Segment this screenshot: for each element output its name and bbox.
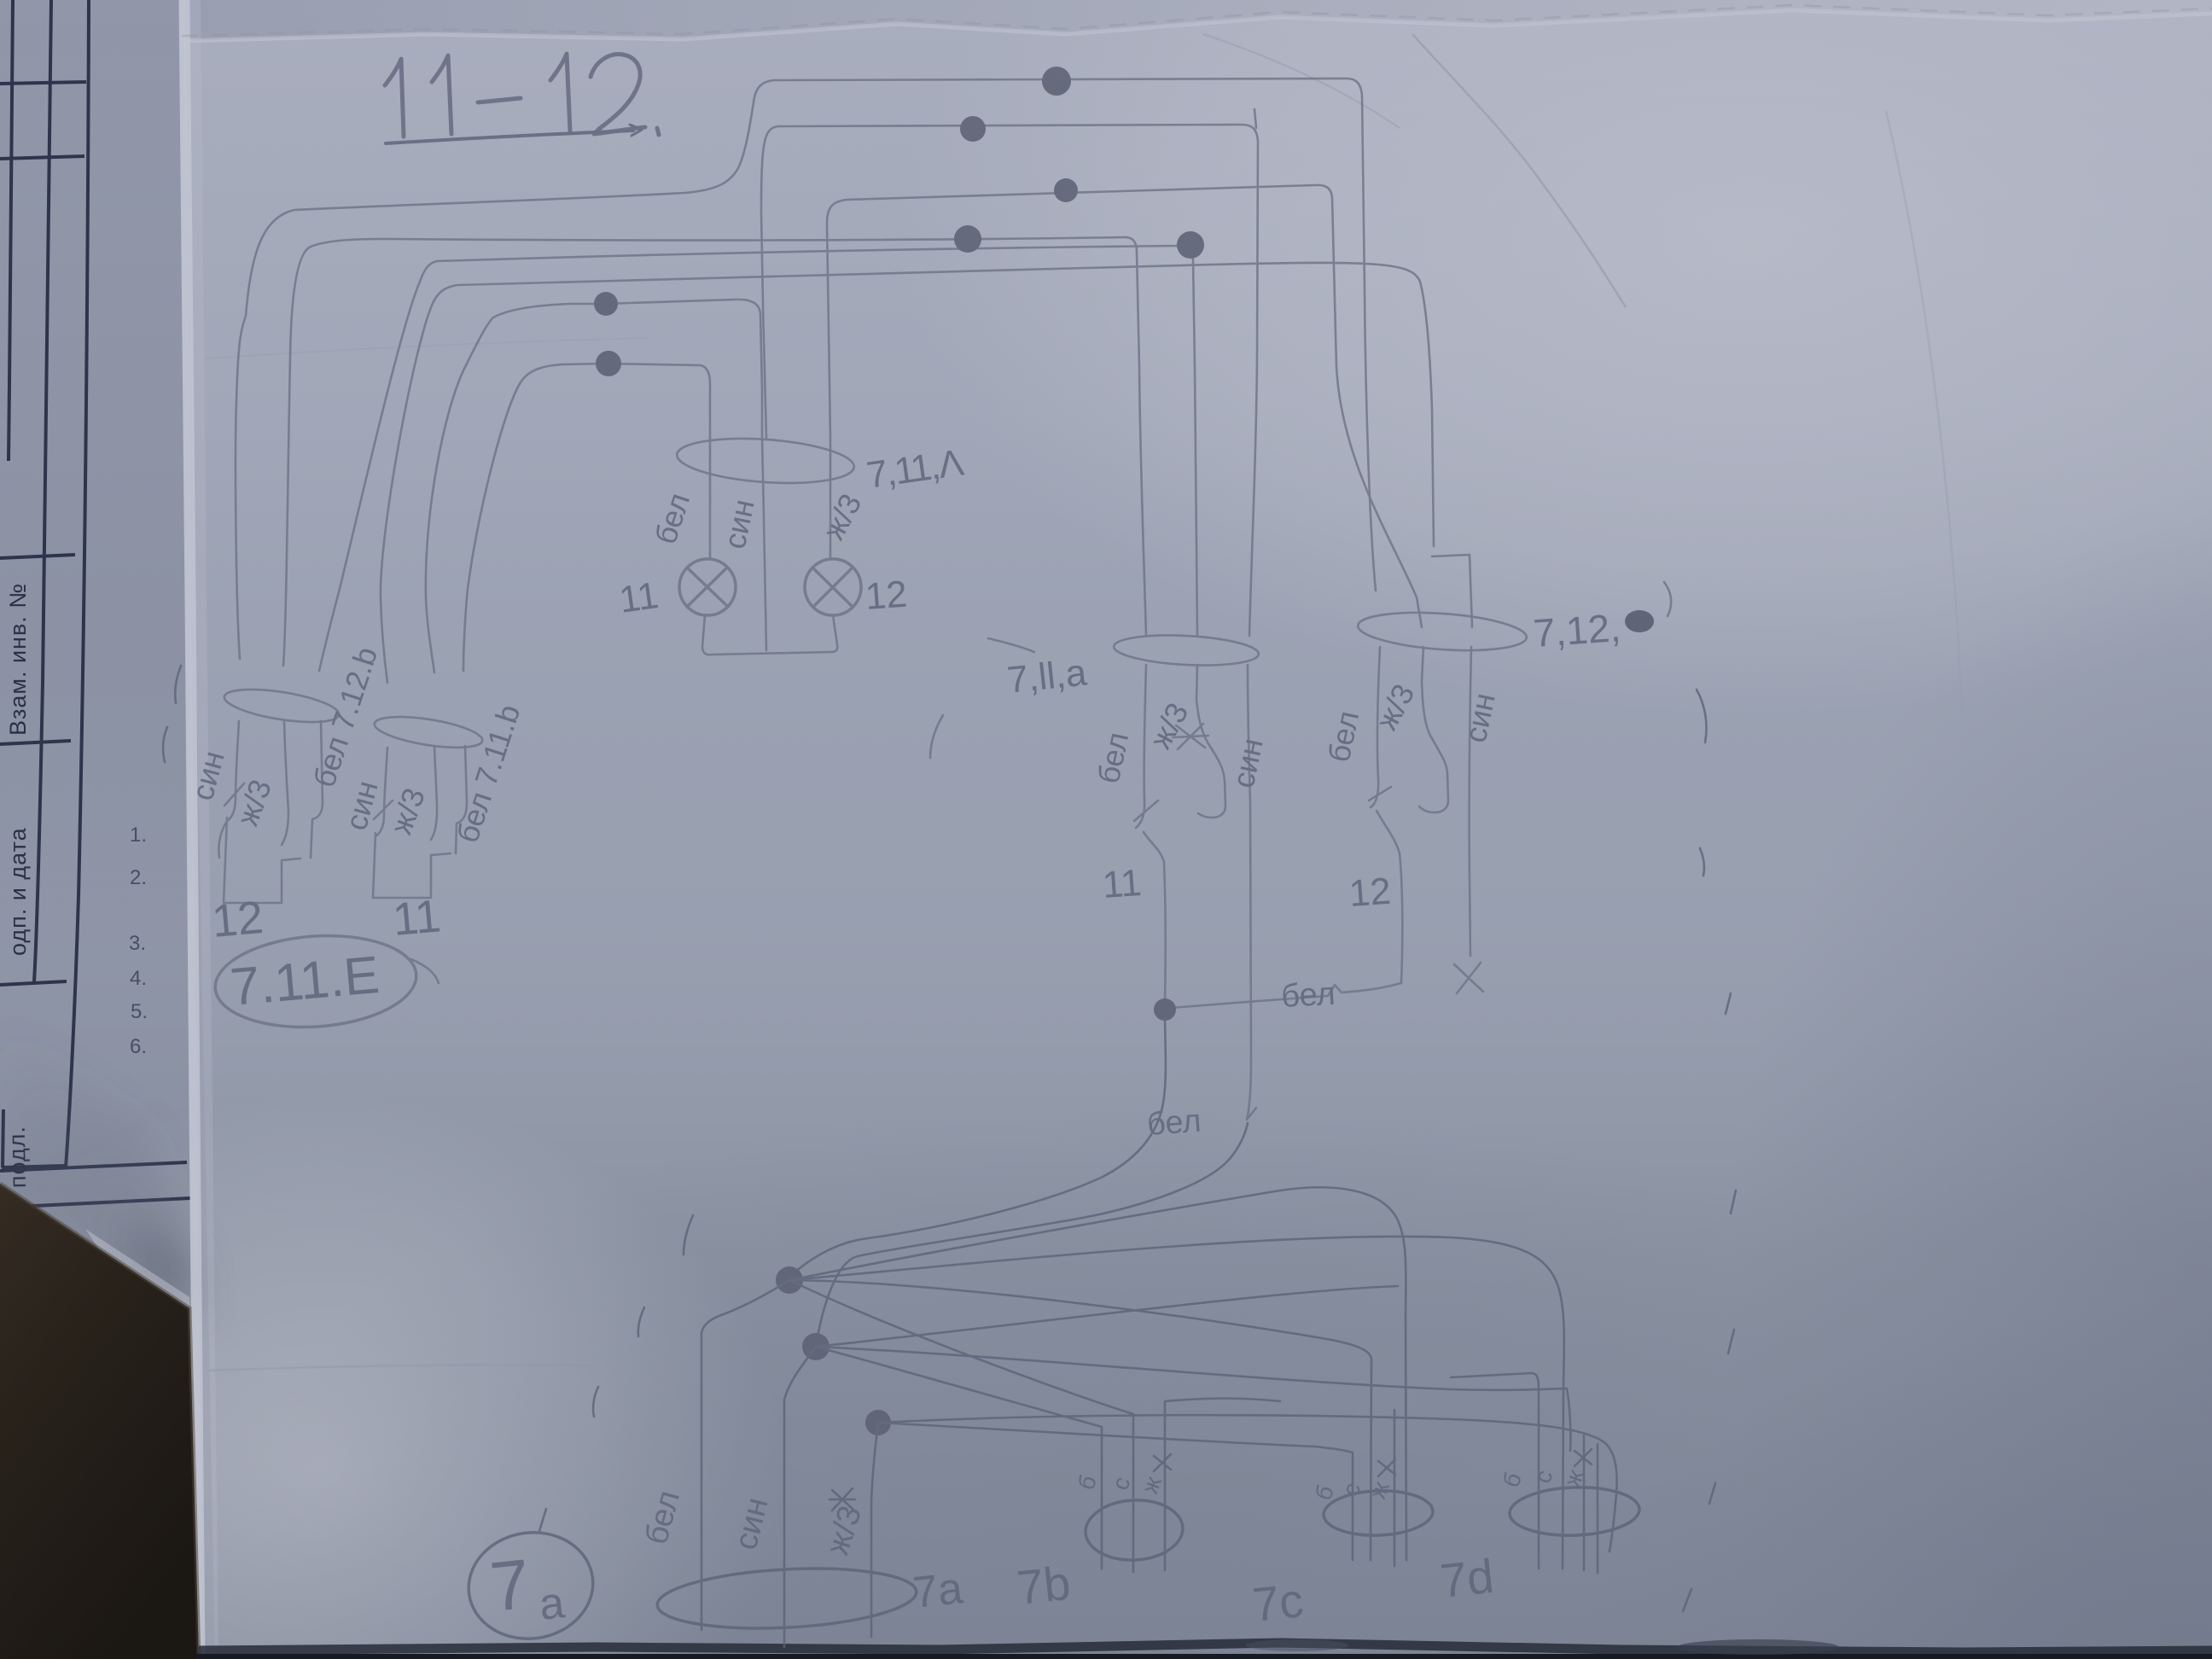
svg-text:1.: 1. [130,824,147,847]
svg-text:7,ll,a: 7,ll,a [1005,651,1089,701]
svg-text:12: 12 [210,892,265,947]
svg-text:11: 11 [391,890,443,946]
svg-text:7c: 7c [1250,1573,1306,1632]
svg-text:12: 12 [864,573,908,618]
svg-text:7b: 7b [1015,1556,1074,1615]
svg-text:бел: бел [1280,976,1336,1015]
svg-text:7: 7 [486,1545,533,1627]
svg-text:бел: бел [1146,1103,1202,1143]
svg-text:5.: 5. [131,1000,148,1023]
svg-text:11: 11 [617,574,661,621]
svg-text:2.: 2. [130,866,147,889]
svg-text:3.: 3. [129,932,146,955]
svg-text:a: a [537,1578,567,1630]
svg-text:6.: 6. [130,1035,147,1058]
svg-text:7,12,: 7,12, [1532,605,1622,655]
svg-text:Взам. инв. №: Взам. инв. № [5,583,31,736]
svg-text:7a: 7a [911,1563,965,1618]
svg-text:4.: 4. [130,967,147,990]
svg-text:12: 12 [1348,870,1392,915]
svg-text:7d: 7d [1438,1549,1497,1608]
svg-text:одп. и дата: одп. и дата [5,827,31,956]
svg-text:11: 11 [1101,862,1143,906]
